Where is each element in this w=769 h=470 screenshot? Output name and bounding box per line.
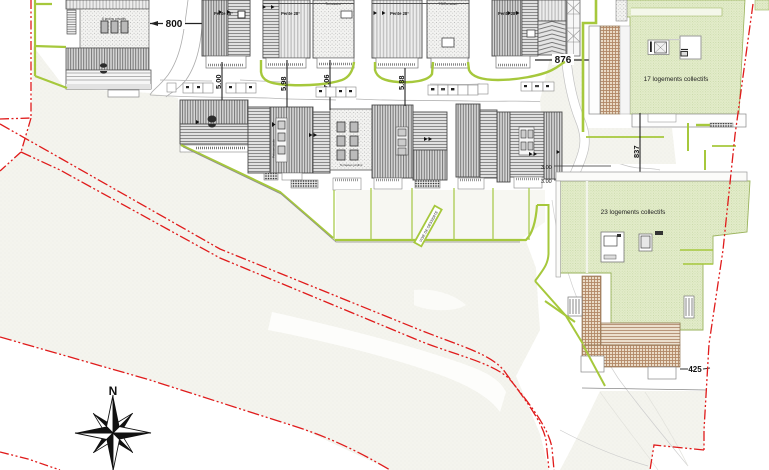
svg-text:425: 425 bbox=[688, 365, 702, 374]
svg-text:8 jardins privatifs: 8 jardins privatifs bbox=[102, 17, 126, 21]
svg-text:3.00: 3.00 bbox=[541, 179, 552, 185]
svg-text:Pente 28°: Pente 28° bbox=[214, 11, 233, 16]
svg-text:5.88: 5.88 bbox=[397, 75, 406, 90]
svg-text:800: 800 bbox=[166, 19, 183, 30]
svg-text:Pelouse jardin: Pelouse jardin bbox=[272, 139, 276, 158]
svg-text:17 logements collectifs: 17 logements collectifs bbox=[644, 76, 709, 83]
svg-text:837: 837 bbox=[632, 145, 641, 158]
svg-text:876: 876 bbox=[555, 55, 572, 66]
svg-text:5.00: 5.00 bbox=[214, 74, 223, 89]
svg-text:Terrasses: Terrasses bbox=[325, 2, 341, 6]
svg-text:5.98: 5.98 bbox=[279, 76, 288, 91]
svg-text:23 logements collectifs: 23 logements collectifs bbox=[601, 209, 666, 216]
svg-text:3.00: 3.00 bbox=[541, 165, 552, 171]
svg-text:Pente 28°: Pente 28° bbox=[390, 11, 409, 16]
svg-text:Terrasses jardins: Terrasses jardins bbox=[340, 163, 363, 167]
svg-text:Pente 28°: Pente 28° bbox=[281, 11, 300, 16]
svg-text:T3/Terrasse: T3/Terrasse bbox=[439, 2, 458, 6]
